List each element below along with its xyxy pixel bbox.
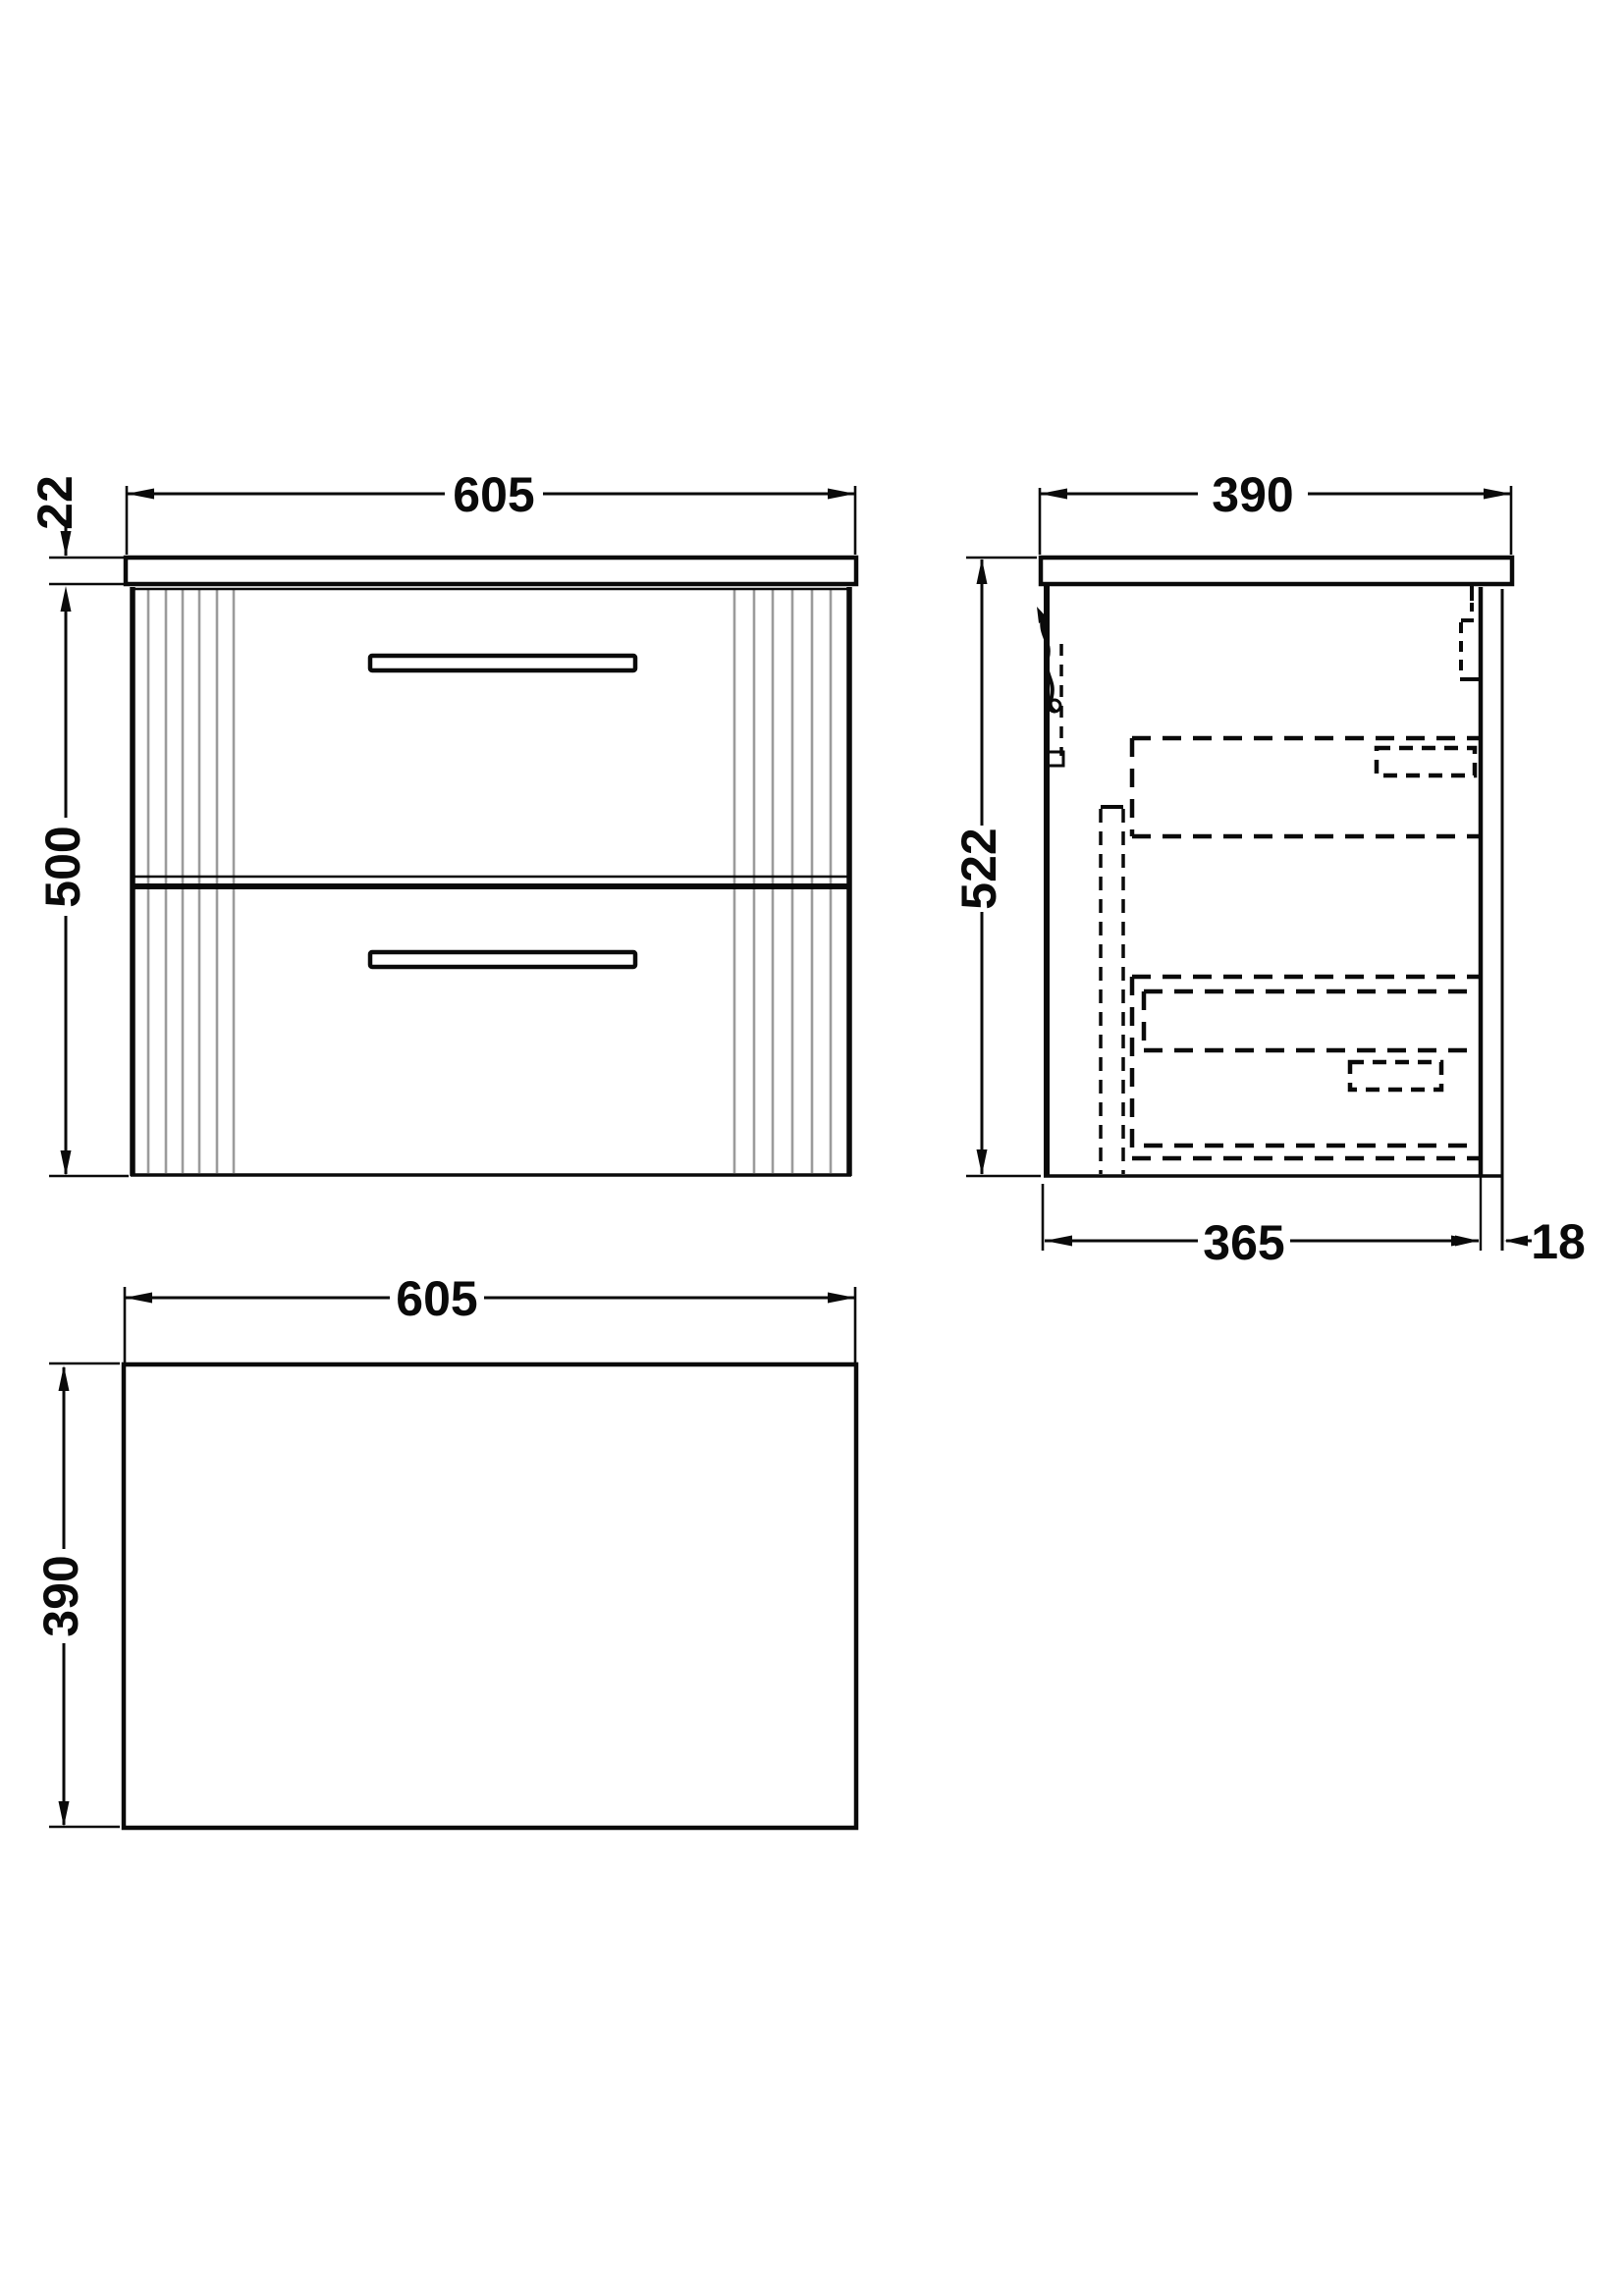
- front-bottom-drawer-handle: [370, 952, 635, 967]
- arrowhead: [1045, 1236, 1072, 1247]
- plan-width-label: 605: [396, 1271, 477, 1326]
- upper-drawer-hidden-box: [1132, 738, 1481, 836]
- hidden-front-channel: [1101, 807, 1123, 1174]
- arrowhead: [59, 1365, 70, 1391]
- arrowhead: [1040, 489, 1067, 500]
- side-depth-label: 390: [1212, 467, 1293, 522]
- drawer-runner: [1377, 748, 1475, 775]
- arrowhead: [1504, 1236, 1528, 1247]
- ink: [49, 486, 1532, 1828]
- side-view: [966, 486, 1532, 1251]
- arrowhead: [59, 1801, 70, 1827]
- front-flute-lines: [148, 590, 831, 1173]
- front-worktop: [126, 558, 856, 584]
- arrowhead: [1484, 489, 1511, 500]
- plan-worktop-outline: [124, 1364, 856, 1828]
- side-worktop: [1041, 558, 1512, 584]
- front-worktop-thickness-dimension: [49, 526, 125, 612]
- side-back-gap-label: 18: [1531, 1214, 1586, 1269]
- arrowhead: [61, 531, 72, 557]
- arrowhead: [977, 1149, 988, 1175]
- arrowhead: [127, 489, 154, 500]
- dimension-labels: 605 22 500 390 522 365 18 605 390: [27, 467, 1586, 1637]
- drawer-runner: [1350, 1062, 1441, 1090]
- front-worktop-thickness-label: 22: [27, 475, 82, 530]
- hanging-bracket-front-detail: [1037, 607, 1063, 766]
- arrowhead: [828, 489, 855, 500]
- front-top-drawer-handle: [370, 656, 635, 670]
- arrowhead: [61, 586, 72, 612]
- vanity-technical-drawing: 605 22 500 390 522 365 18 605 390: [0, 0, 1623, 2296]
- front-width-label: 605: [453, 467, 534, 522]
- drawing-sheet: 605 22 500 390 522 365 18 605 390: [0, 0, 1623, 2296]
- plan-view: [49, 1287, 856, 1828]
- arrowhead: [61, 1150, 72, 1176]
- side-back-gap-dimension: [1445, 1236, 1532, 1247]
- arrowhead: [977, 559, 988, 584]
- plan-width-dimension: [125, 1287, 855, 1362]
- side-carcase-depth-label: 365: [1203, 1215, 1284, 1270]
- arrowhead: [1455, 1236, 1479, 1247]
- plan-depth-label: 390: [33, 1555, 88, 1636]
- arrowhead: [828, 1293, 855, 1304]
- front-height-label: 500: [35, 826, 90, 907]
- lower-drawer-hidden-box: [1132, 977, 1481, 1158]
- side-height-label: 522: [951, 828, 1006, 909]
- arrowhead: [125, 1293, 152, 1304]
